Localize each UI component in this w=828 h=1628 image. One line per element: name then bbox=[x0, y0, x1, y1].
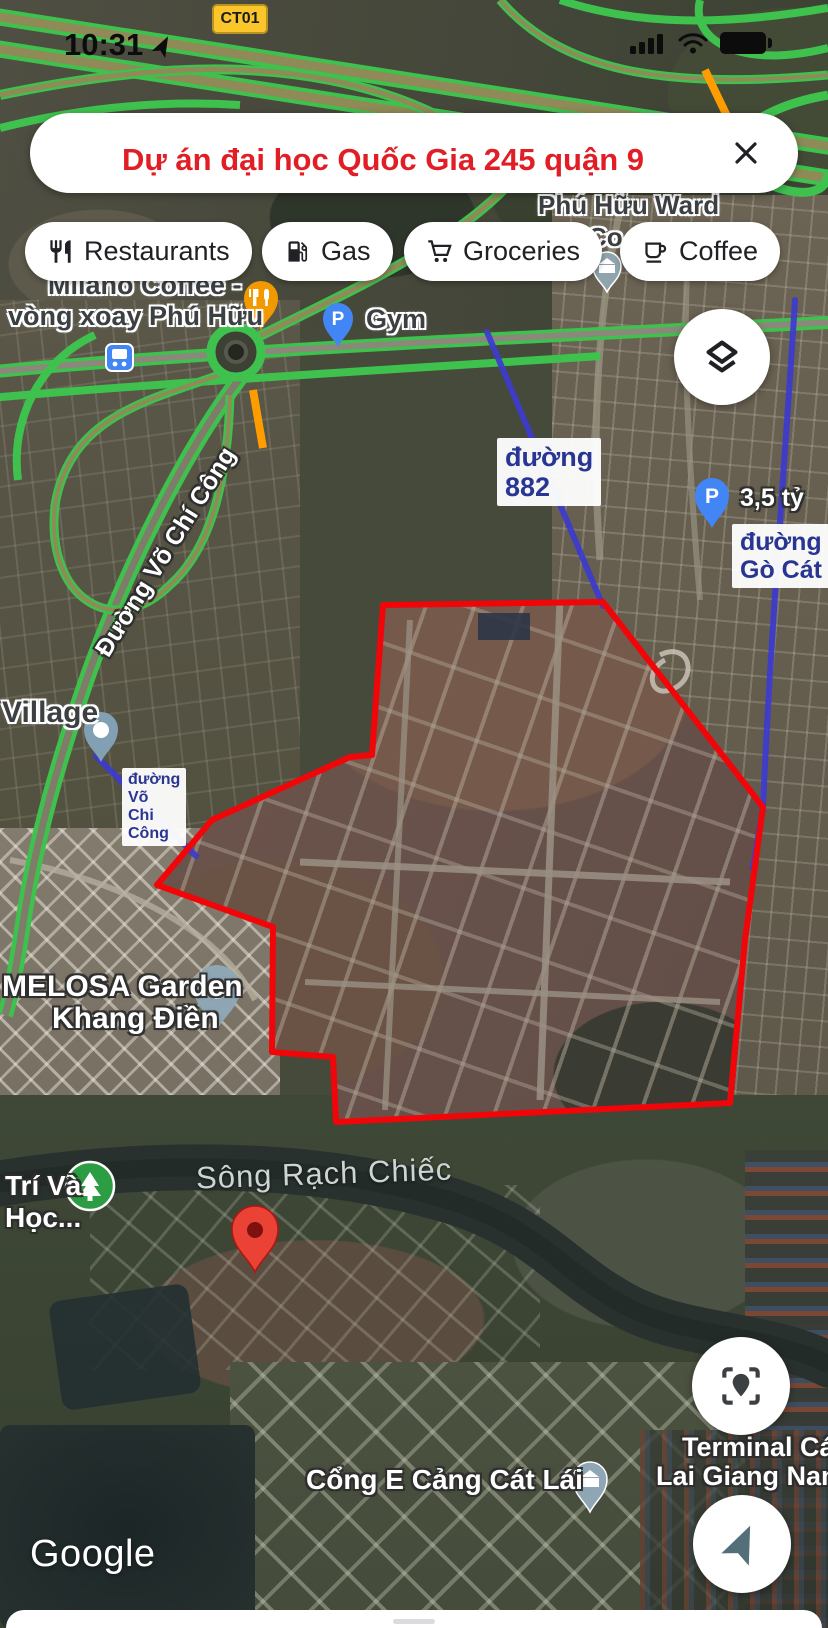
close-search-button[interactable] bbox=[716, 123, 776, 183]
wifi-icon bbox=[678, 32, 708, 54]
annotation-label-vo-chi-cong: đường Võ Chi Công bbox=[122, 768, 186, 846]
layers-button[interactable] bbox=[674, 309, 770, 405]
bus-stop-icon[interactable] bbox=[106, 344, 133, 371]
annotation-label-882-line1: đường bbox=[505, 442, 593, 472]
my-location-button[interactable] bbox=[692, 1337, 790, 1435]
label-tri-va-2: Học... bbox=[5, 1202, 81, 1234]
location-frame-icon bbox=[716, 1361, 766, 1411]
chip-restaurants[interactable]: Restaurants bbox=[25, 222, 252, 281]
category-chips: Restaurants Gas Groceries Coffee bbox=[0, 222, 828, 282]
annotation-label-vcc-line2: Võ bbox=[128, 789, 180, 807]
navigation-arrow-icon bbox=[718, 1520, 766, 1568]
annotation-label-go-cat: đường Gò Cát bbox=[732, 524, 828, 588]
annotation-label-882: đường 882 bbox=[497, 438, 601, 506]
search-bar[interactable]: Dự án đại học Quốc Gia 245 quận 9 bbox=[30, 113, 798, 193]
layers-icon bbox=[699, 334, 745, 380]
chip-coffee[interactable]: Coffee bbox=[620, 222, 780, 281]
parking-pin-go-cat[interactable]: P bbox=[695, 478, 729, 528]
chip-coffee-label: Coffee bbox=[679, 236, 758, 267]
search-query[interactable]: Dự án đại học Quốc Gia 245 quận 9 bbox=[30, 128, 716, 178]
project-signboard bbox=[478, 613, 530, 640]
annotation-label-vcc-line3: Chi bbox=[128, 807, 180, 825]
groceries-icon bbox=[426, 238, 453, 265]
annotation-label-vcc-line4: Công bbox=[128, 825, 180, 843]
svg-text:P: P bbox=[332, 309, 345, 330]
project-boundary-polygon[interactable] bbox=[157, 602, 763, 1122]
restaurants-icon bbox=[47, 238, 74, 265]
annotation-label-go-cat-line2: Gò Cát bbox=[740, 556, 822, 584]
location-services-icon bbox=[150, 33, 176, 59]
signal-strength-icon bbox=[630, 34, 666, 54]
chip-restaurants-label: Restaurants bbox=[84, 236, 230, 267]
label-gym: Gym bbox=[366, 304, 426, 335]
bottom-sheet[interactable] bbox=[6, 1610, 822, 1628]
svg-text:P: P bbox=[705, 485, 719, 508]
label-melosa-2: Khang Điền bbox=[52, 1002, 219, 1036]
river bbox=[0, 1167, 828, 1365]
label-phu-huu-ward: Phú Hữu Ward bbox=[538, 190, 719, 221]
chip-gas-label: Gas bbox=[321, 236, 371, 267]
compass-navigate-button[interactable] bbox=[693, 1495, 791, 1593]
chip-groceries-label: Groceries bbox=[463, 236, 580, 267]
destination-pin[interactable] bbox=[232, 1206, 278, 1272]
close-icon bbox=[730, 137, 762, 169]
status-bar: 10:31 bbox=[0, 0, 828, 70]
label-village: Village bbox=[2, 696, 98, 730]
coffee-icon bbox=[642, 238, 669, 265]
label-melosa-1: MELOSA Garden bbox=[2, 970, 243, 1004]
map-canvas[interactable]: P P bbox=[0, 0, 828, 1628]
label-cong-e: Cổng E Cảng Cát Lái bbox=[306, 1464, 583, 1496]
annotation-label-882-line2: 882 bbox=[505, 472, 593, 502]
annotation-label-vcc-line1: đường bbox=[128, 771, 180, 789]
clock: 10:31 bbox=[64, 27, 143, 63]
battery-icon bbox=[720, 32, 766, 54]
label-tri-va-1: Trí Và bbox=[5, 1170, 81, 1202]
label-terminal-1: Terminal Cát bbox=[682, 1432, 828, 1463]
sheet-drag-handle[interactable] bbox=[393, 1619, 435, 1624]
chip-groceries[interactable]: Groceries bbox=[404, 222, 602, 281]
label-price: 3,5 tỷ bbox=[740, 484, 804, 513]
chip-gas[interactable]: Gas bbox=[262, 222, 393, 281]
gas-icon bbox=[284, 238, 311, 265]
label-milano-2: vòng xoay Phú Hữu bbox=[8, 301, 263, 332]
google-logo: Google bbox=[30, 1533, 156, 1576]
annotation-label-go-cat-line1: đường bbox=[740, 528, 822, 556]
label-terminal-2: Lai Giang Nam bbox=[656, 1461, 828, 1492]
